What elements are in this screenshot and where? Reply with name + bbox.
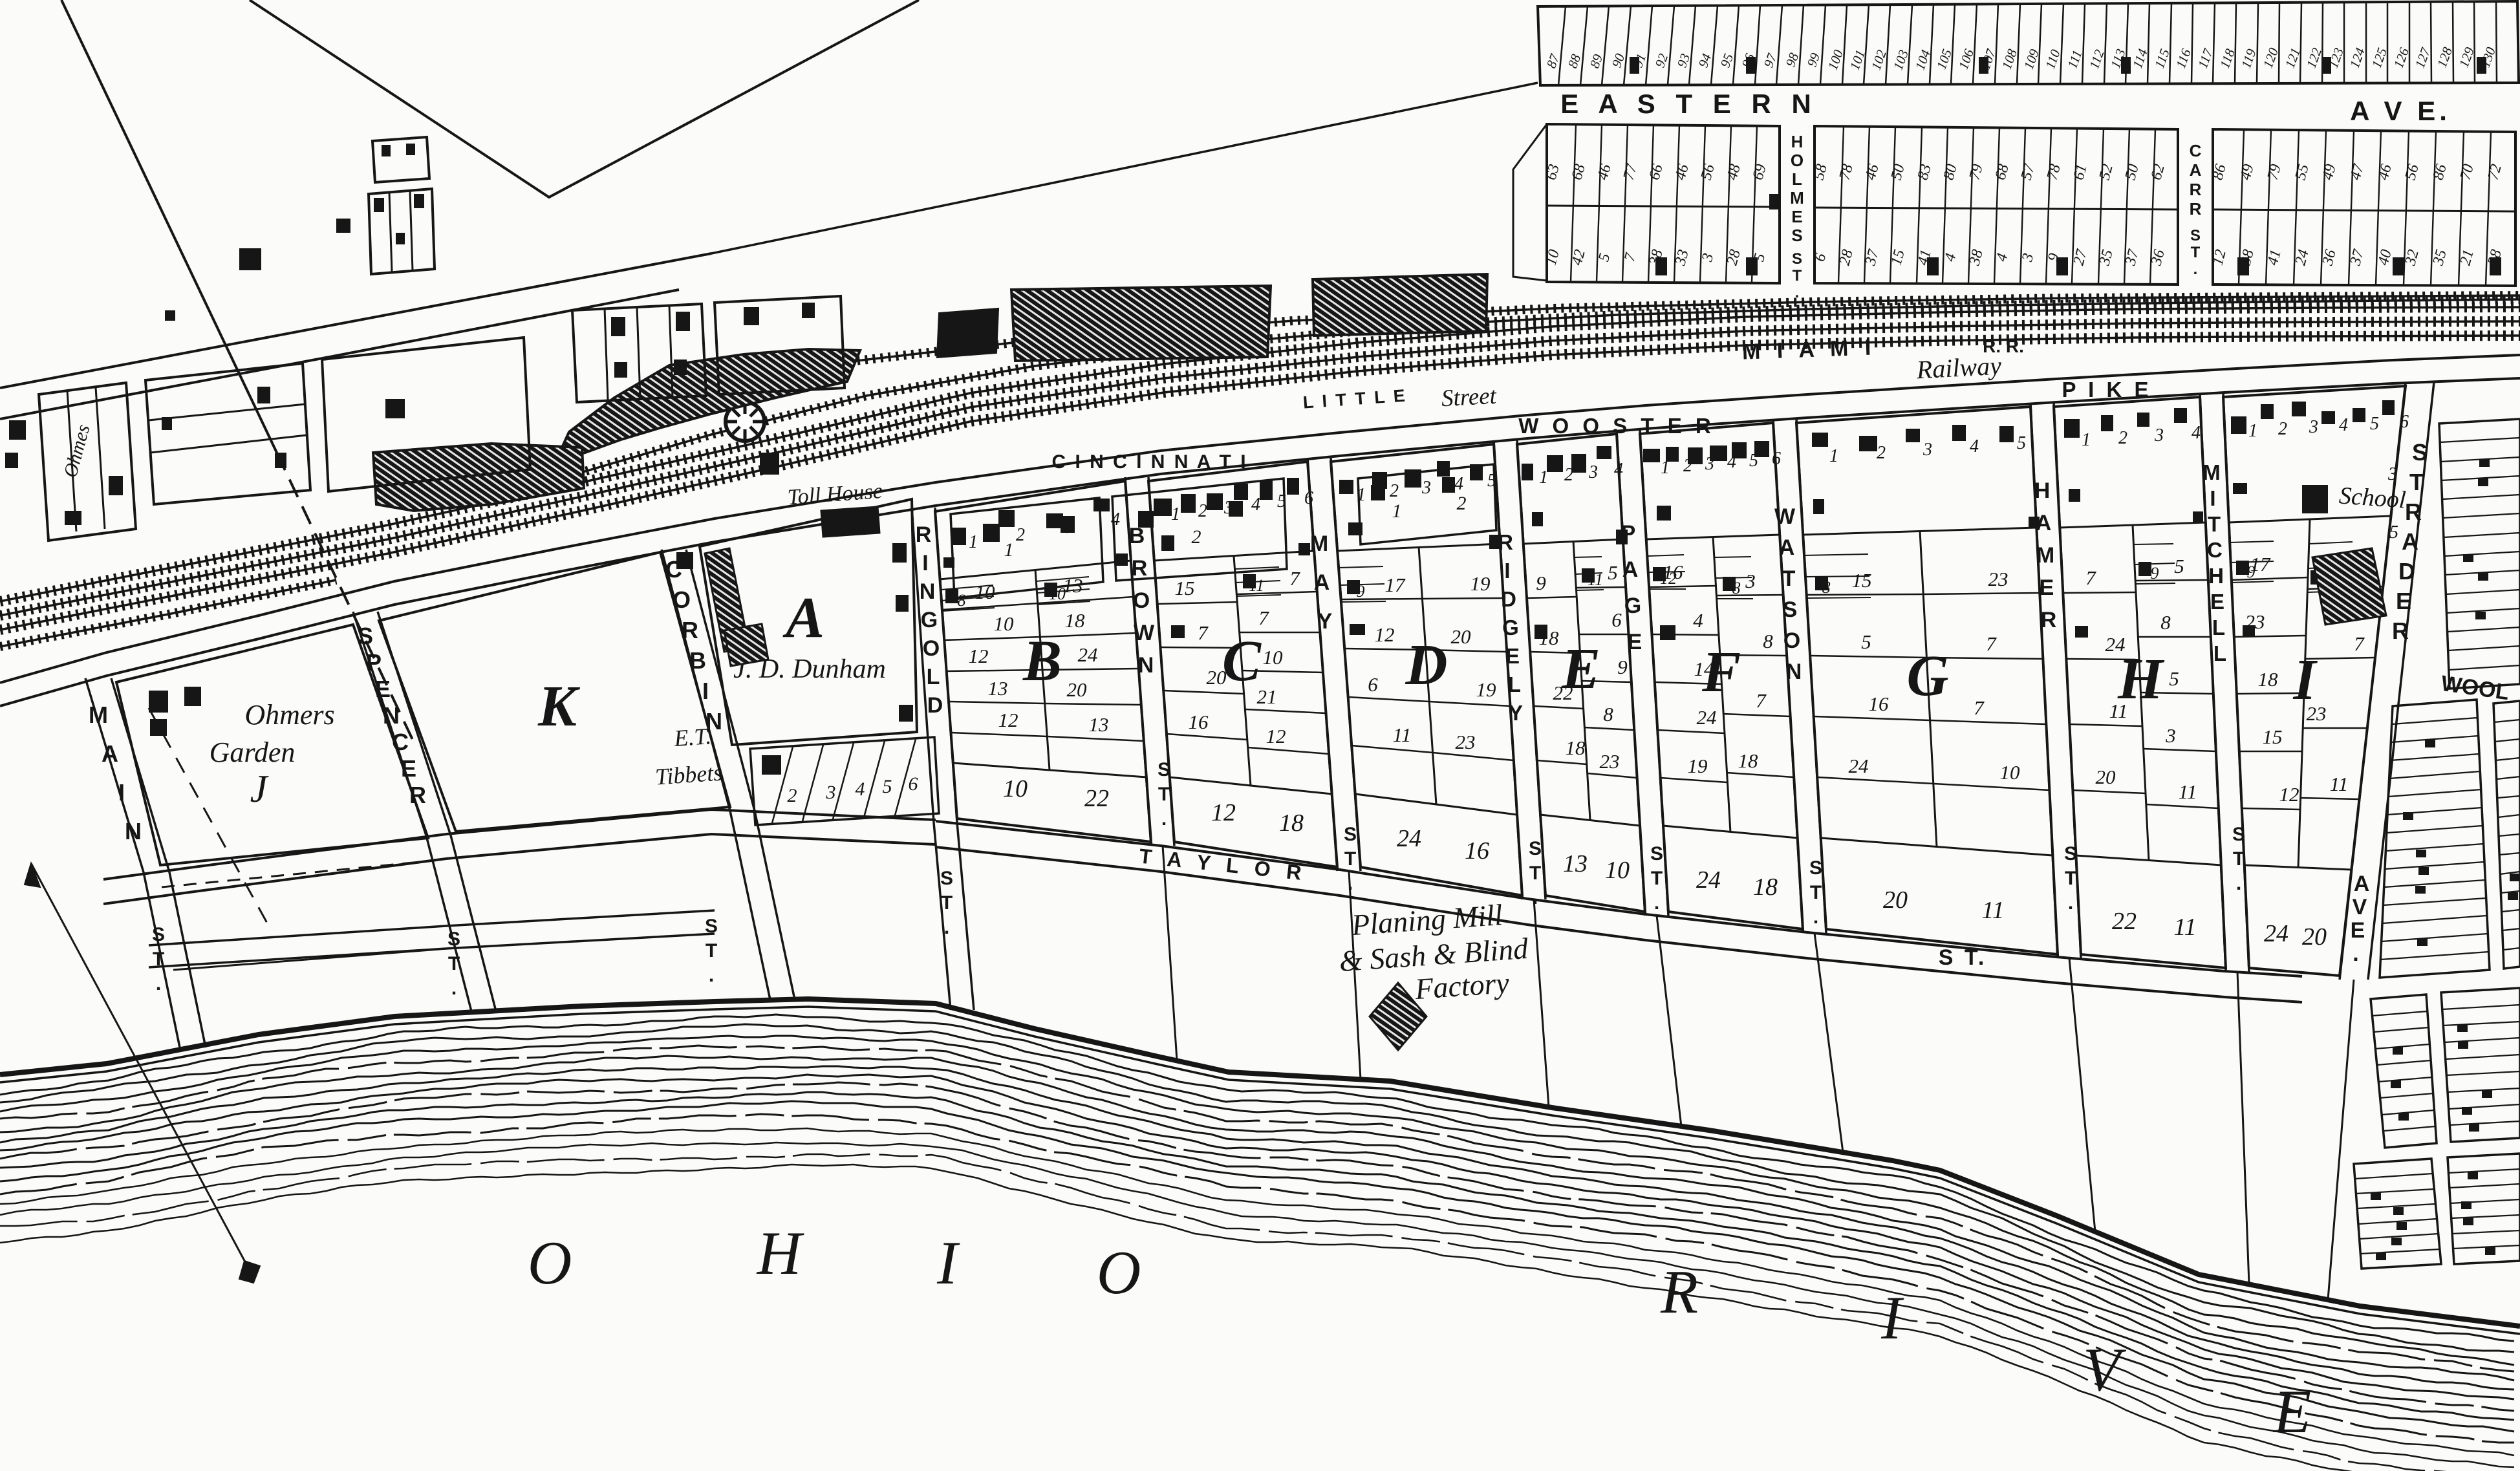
svg-text:24: 24 — [2264, 920, 2288, 947]
svg-text:18: 18 — [1753, 874, 1778, 901]
svg-text:15: 15 — [1175, 577, 1195, 599]
svg-text:13: 13 — [1563, 850, 1588, 877]
svg-text:2: 2 — [2118, 428, 2127, 448]
svg-text:8: 8 — [1603, 703, 1613, 725]
svg-text:T: T — [1344, 848, 1356, 870]
svg-text:R: R — [2190, 180, 2202, 199]
svg-text:O: O — [1791, 151, 1804, 170]
svg-text:A: A — [2354, 872, 2370, 896]
svg-text:20: 20 — [1883, 886, 1908, 914]
svg-text:2: 2 — [1192, 526, 1201, 548]
svg-text:10: 10 — [2000, 761, 2021, 784]
svg-text:T: T — [705, 940, 717, 961]
svg-text:19: 19 — [1688, 755, 1708, 777]
svg-text:T: T — [1793, 267, 1802, 285]
svg-text:S: S — [1650, 843, 1663, 864]
svg-text:E A S T E R N: E A S T E R N — [1560, 89, 1818, 119]
svg-text:23: 23 — [1988, 568, 2008, 590]
svg-text:10: 10 — [1605, 857, 1630, 884]
svg-text:G: G — [921, 608, 938, 632]
svg-text:23: 23 — [1456, 731, 1476, 753]
svg-text:23: 23 — [1600, 750, 1620, 773]
svg-text:A: A — [2402, 528, 2418, 555]
svg-text:L: L — [927, 665, 940, 689]
svg-text:A V E.: A V E. — [2350, 96, 2451, 126]
svg-text:11: 11 — [1393, 724, 1412, 746]
svg-text:.: . — [1533, 887, 1538, 908]
svg-text:6: 6 — [1304, 488, 1313, 508]
svg-text:1: 1 — [2082, 430, 2091, 450]
svg-text:A: A — [2190, 160, 2202, 180]
svg-text:18: 18 — [1279, 810, 1304, 837]
svg-text:.: . — [1813, 907, 1818, 928]
svg-text:5: 5 — [2169, 667, 2179, 690]
svg-text:18: 18 — [1566, 736, 1586, 759]
svg-text:17: 17 — [1385, 574, 1406, 596]
svg-text:E: E — [2210, 590, 2224, 614]
svg-text:P I K E: P I K E — [2062, 378, 2152, 402]
svg-text:10: 10 — [994, 612, 1015, 635]
svg-text:T: T — [941, 892, 953, 914]
svg-text:G: G — [1907, 644, 1949, 708]
svg-text:3: 3 — [2165, 724, 2176, 747]
svg-text:S: S — [1792, 250, 1802, 268]
svg-text:S: S — [1344, 824, 1357, 845]
svg-text:7: 7 — [1258, 607, 1269, 629]
svg-text:C I N C I N N A T I: C I N C I N N A T I — [1051, 451, 1247, 473]
svg-text:24: 24 — [1697, 706, 1717, 729]
svg-text:S: S — [1809, 857, 1822, 879]
svg-text:2: 2 — [788, 785, 797, 806]
svg-text:E: E — [1561, 637, 1600, 701]
svg-text:E: E — [2272, 1377, 2311, 1446]
svg-text:.: . — [1161, 808, 1167, 830]
svg-text:7: 7 — [1986, 632, 1997, 655]
svg-text:E.T.: E.T. — [673, 723, 712, 751]
svg-text:H: H — [1791, 132, 1804, 151]
svg-text:F: F — [1701, 640, 1741, 704]
svg-text:M I A M I: M I A M I — [1741, 335, 1877, 364]
svg-text:T: T — [1810, 882, 1822, 903]
svg-text:H: H — [2208, 564, 2224, 588]
svg-text:4: 4 — [1970, 436, 1979, 456]
svg-text:I: I — [922, 551, 928, 575]
svg-text:R: R — [2392, 617, 2409, 644]
svg-text:8: 8 — [2160, 611, 2171, 634]
svg-text:L: L — [2213, 641, 2226, 665]
svg-text:7: 7 — [1974, 696, 1985, 719]
svg-text:4: 4 — [2339, 415, 2348, 435]
svg-text:S: S — [2190, 227, 2201, 244]
svg-text:24: 24 — [1696, 866, 1721, 894]
svg-text:.: . — [2193, 261, 2198, 278]
svg-text:A: A — [782, 586, 824, 650]
svg-text:Tibbets: Tibbets — [654, 759, 724, 789]
svg-text:9: 9 — [1536, 572, 1546, 594]
svg-text:20: 20 — [1067, 678, 1088, 701]
svg-text:5: 5 — [2370, 414, 2379, 434]
svg-text:M: M — [1790, 188, 1804, 208]
svg-text:2: 2 — [1390, 481, 1399, 501]
svg-text:20: 20 — [2096, 766, 2116, 788]
svg-text:H: H — [756, 1219, 804, 1287]
svg-text:.: . — [1795, 284, 1800, 301]
svg-text:Garden: Garden — [210, 736, 296, 768]
svg-text:6: 6 — [1368, 673, 1378, 696]
svg-text:2: 2 — [2278, 419, 2287, 439]
svg-text:I: I — [2292, 648, 2318, 712]
svg-text:H: H — [2034, 478, 2051, 503]
svg-text:T: T — [2191, 244, 2201, 261]
svg-text:12: 12 — [998, 709, 1018, 731]
svg-text:N: N — [125, 818, 142, 844]
svg-text:A: A — [102, 740, 118, 767]
svg-text:3: 3 — [826, 782, 836, 803]
svg-text:J: J — [250, 768, 269, 810]
svg-text:12: 12 — [2279, 783, 2299, 806]
svg-text:3: 3 — [1922, 440, 1932, 460]
svg-text:18: 18 — [1738, 749, 1759, 772]
svg-text:Street: Street — [1441, 383, 1498, 412]
svg-text:L: L — [2212, 616, 2225, 639]
svg-text:I: I — [1880, 1283, 1904, 1352]
svg-text:C: C — [1222, 629, 1262, 693]
svg-text:7: 7 — [1289, 567, 1300, 590]
svg-text:M: M — [2202, 460, 2221, 484]
svg-text:I: I — [936, 1229, 960, 1297]
svg-text:6: 6 — [2400, 412, 2409, 432]
svg-text:R: R — [916, 522, 932, 547]
svg-text:.: . — [1654, 892, 1659, 914]
svg-text:T: T — [1529, 863, 1541, 884]
svg-text:16: 16 — [1869, 693, 1890, 715]
svg-text:T: T — [2065, 868, 2076, 889]
svg-text:22: 22 — [1084, 785, 1109, 812]
svg-text:5: 5 — [2174, 555, 2184, 577]
svg-text:4: 4 — [1693, 609, 1703, 632]
svg-text:.: . — [709, 965, 714, 986]
svg-text:5: 5 — [1861, 630, 1871, 653]
svg-text:R: R — [1132, 556, 1148, 581]
svg-text:1: 1 — [1392, 500, 1402, 522]
svg-text:N: N — [920, 579, 936, 604]
svg-text:4: 4 — [1251, 495, 1260, 515]
svg-text:5: 5 — [2017, 433, 2026, 453]
svg-text:1: 1 — [969, 532, 978, 552]
svg-text:D: D — [1405, 633, 1448, 697]
svg-text:13: 13 — [988, 677, 1008, 700]
svg-text:T: T — [448, 953, 460, 974]
svg-text:N: N — [1138, 653, 1154, 678]
svg-text:L: L — [1792, 169, 1802, 189]
svg-text:11: 11 — [2173, 914, 2196, 941]
svg-text:5: 5 — [1608, 561, 1618, 584]
svg-text:6: 6 — [909, 773, 918, 795]
svg-text:2: 2 — [1457, 493, 1467, 514]
svg-text:1: 1 — [1004, 539, 1014, 561]
svg-text:7: 7 — [1198, 621, 1209, 644]
svg-text:5: 5 — [883, 776, 892, 797]
svg-text:.: . — [944, 917, 949, 938]
svg-text:2: 2 — [1016, 525, 1025, 545]
svg-text:S: S — [940, 868, 953, 889]
svg-text:3: 3 — [2309, 417, 2318, 437]
svg-text:5: 5 — [2389, 522, 2398, 542]
svg-text:D: D — [927, 693, 943, 718]
svg-text:15: 15 — [1852, 569, 1872, 592]
svg-text:4: 4 — [1614, 460, 1623, 480]
svg-text:4: 4 — [2192, 423, 2201, 443]
svg-text:E: E — [2396, 588, 2411, 614]
svg-text:22: 22 — [2112, 908, 2137, 935]
svg-text:C: C — [2190, 141, 2202, 160]
svg-text:O: O — [923, 636, 940, 661]
svg-text:.: . — [156, 973, 161, 994]
svg-text:R: R — [1660, 1258, 1698, 1326]
svg-text:11: 11 — [1981, 897, 2004, 924]
svg-text:.: . — [1348, 873, 1353, 894]
svg-text:11: 11 — [2179, 780, 2197, 803]
svg-text:.: . — [2353, 941, 2358, 966]
svg-text:O: O — [528, 1229, 572, 1297]
svg-text:.: . — [2068, 892, 2073, 914]
svg-text:S: S — [1529, 838, 1542, 859]
svg-text:4: 4 — [1454, 474, 1463, 494]
svg-text:7: 7 — [2354, 632, 2365, 655]
svg-text:S: S — [152, 924, 165, 945]
svg-text:E: E — [375, 676, 391, 702]
svg-text:1: 1 — [1829, 446, 1838, 466]
svg-text:E: E — [2040, 575, 2054, 600]
svg-text:T: T — [2208, 512, 2221, 536]
svg-text:18: 18 — [1065, 609, 1086, 632]
svg-text:2: 2 — [1198, 501, 1207, 521]
svg-text:R. R.: R. R. — [1983, 336, 2024, 356]
svg-text:24: 24 — [1849, 755, 1869, 777]
svg-text:8: 8 — [958, 591, 966, 610]
svg-text:R: R — [2041, 608, 2057, 632]
svg-text:24: 24 — [1078, 643, 1098, 666]
svg-text:3: 3 — [2387, 464, 2397, 484]
svg-text:3: 3 — [1588, 462, 1598, 482]
svg-text:.: . — [451, 978, 457, 999]
svg-text:S: S — [447, 929, 460, 950]
svg-text:3: 3 — [1421, 478, 1431, 498]
svg-text:1: 1 — [2248, 421, 2257, 441]
svg-text:O: O — [1097, 1238, 1141, 1307]
svg-text:V: V — [2083, 1335, 2127, 1404]
svg-text:6: 6 — [1611, 608, 1622, 631]
svg-text:3: 3 — [1745, 570, 1756, 592]
svg-text:7: 7 — [1756, 689, 1767, 712]
svg-text:S: S — [2412, 439, 2428, 466]
svg-text:H: H — [2117, 647, 2165, 711]
svg-text:24: 24 — [1397, 825, 1421, 852]
svg-text:1: 1 — [1539, 467, 1548, 488]
svg-text:I: I — [118, 779, 125, 806]
svg-text:B: B — [1022, 629, 1062, 693]
svg-text:9: 9 — [2151, 564, 2159, 583]
svg-text:.: . — [2236, 873, 2241, 894]
svg-text:12: 12 — [969, 645, 989, 667]
svg-text:Factory: Factory — [1414, 966, 1511, 1005]
svg-text:T: T — [2409, 469, 2424, 495]
svg-text:C: C — [2207, 538, 2223, 562]
svg-text:T: T — [1651, 868, 1663, 889]
svg-text:I: I — [2210, 486, 2215, 510]
svg-text:E: E — [1791, 207, 1802, 226]
svg-text:8: 8 — [1763, 630, 1773, 652]
svg-text:I: I — [702, 678, 709, 704]
svg-text:11: 11 — [2330, 773, 2349, 795]
svg-text:9: 9 — [1617, 656, 1628, 678]
svg-text:6: 6 — [1772, 449, 1781, 469]
svg-text:12: 12 — [1266, 725, 1286, 747]
svg-text:10: 10 — [1003, 775, 1028, 802]
svg-text:16: 16 — [1189, 711, 1209, 733]
svg-text:19: 19 — [1470, 572, 1491, 595]
svg-text:12: 12 — [1375, 623, 1395, 646]
svg-text:V: V — [2353, 895, 2367, 919]
svg-text:I: I — [1504, 559, 1510, 583]
svg-text:19: 19 — [1476, 678, 1496, 701]
svg-text:10: 10 — [975, 581, 996, 603]
svg-text:16: 16 — [1465, 837, 1489, 864]
svg-text:1: 1 — [1171, 504, 1180, 524]
svg-text:M: M — [89, 702, 108, 728]
svg-text:18: 18 — [2258, 668, 2279, 691]
svg-text:R: R — [2190, 199, 2202, 219]
svg-text:K: K — [537, 674, 581, 738]
svg-text:Ohmers: Ohmers — [244, 699, 334, 731]
svg-text:20: 20 — [1451, 625, 1472, 648]
svg-text:R: R — [2405, 499, 2422, 525]
svg-text:20: 20 — [2302, 923, 2327, 950]
svg-text:S T.: S T. — [1939, 945, 1987, 970]
svg-text:School: School — [2338, 482, 2407, 513]
svg-text:2: 2 — [1877, 443, 1886, 463]
svg-text:3: 3 — [2154, 425, 2164, 446]
svg-text:12: 12 — [1211, 799, 1236, 826]
svg-text:T: T — [1158, 784, 1170, 805]
svg-text:10: 10 — [1263, 646, 1284, 669]
svg-text:D: D — [2398, 558, 2415, 585]
svg-text:E: E — [2351, 918, 2365, 943]
svg-text:S: S — [1791, 226, 1802, 245]
svg-text:15: 15 — [2263, 725, 2283, 748]
svg-text:13: 13 — [1089, 713, 1109, 736]
svg-text:4: 4 — [856, 778, 865, 800]
svg-text:7: 7 — [2085, 566, 2096, 589]
